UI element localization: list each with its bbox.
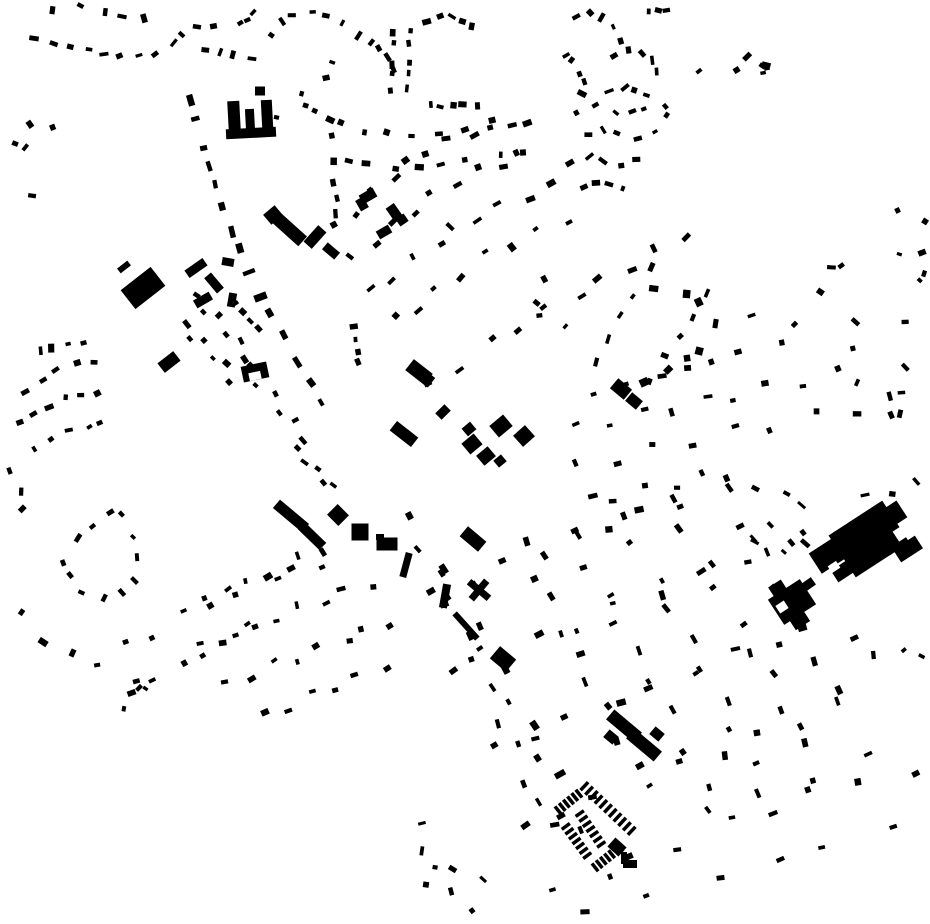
figure-ground-svg <box>0 0 930 924</box>
map-background <box>0 0 930 924</box>
figure-ground-map <box>0 0 930 924</box>
